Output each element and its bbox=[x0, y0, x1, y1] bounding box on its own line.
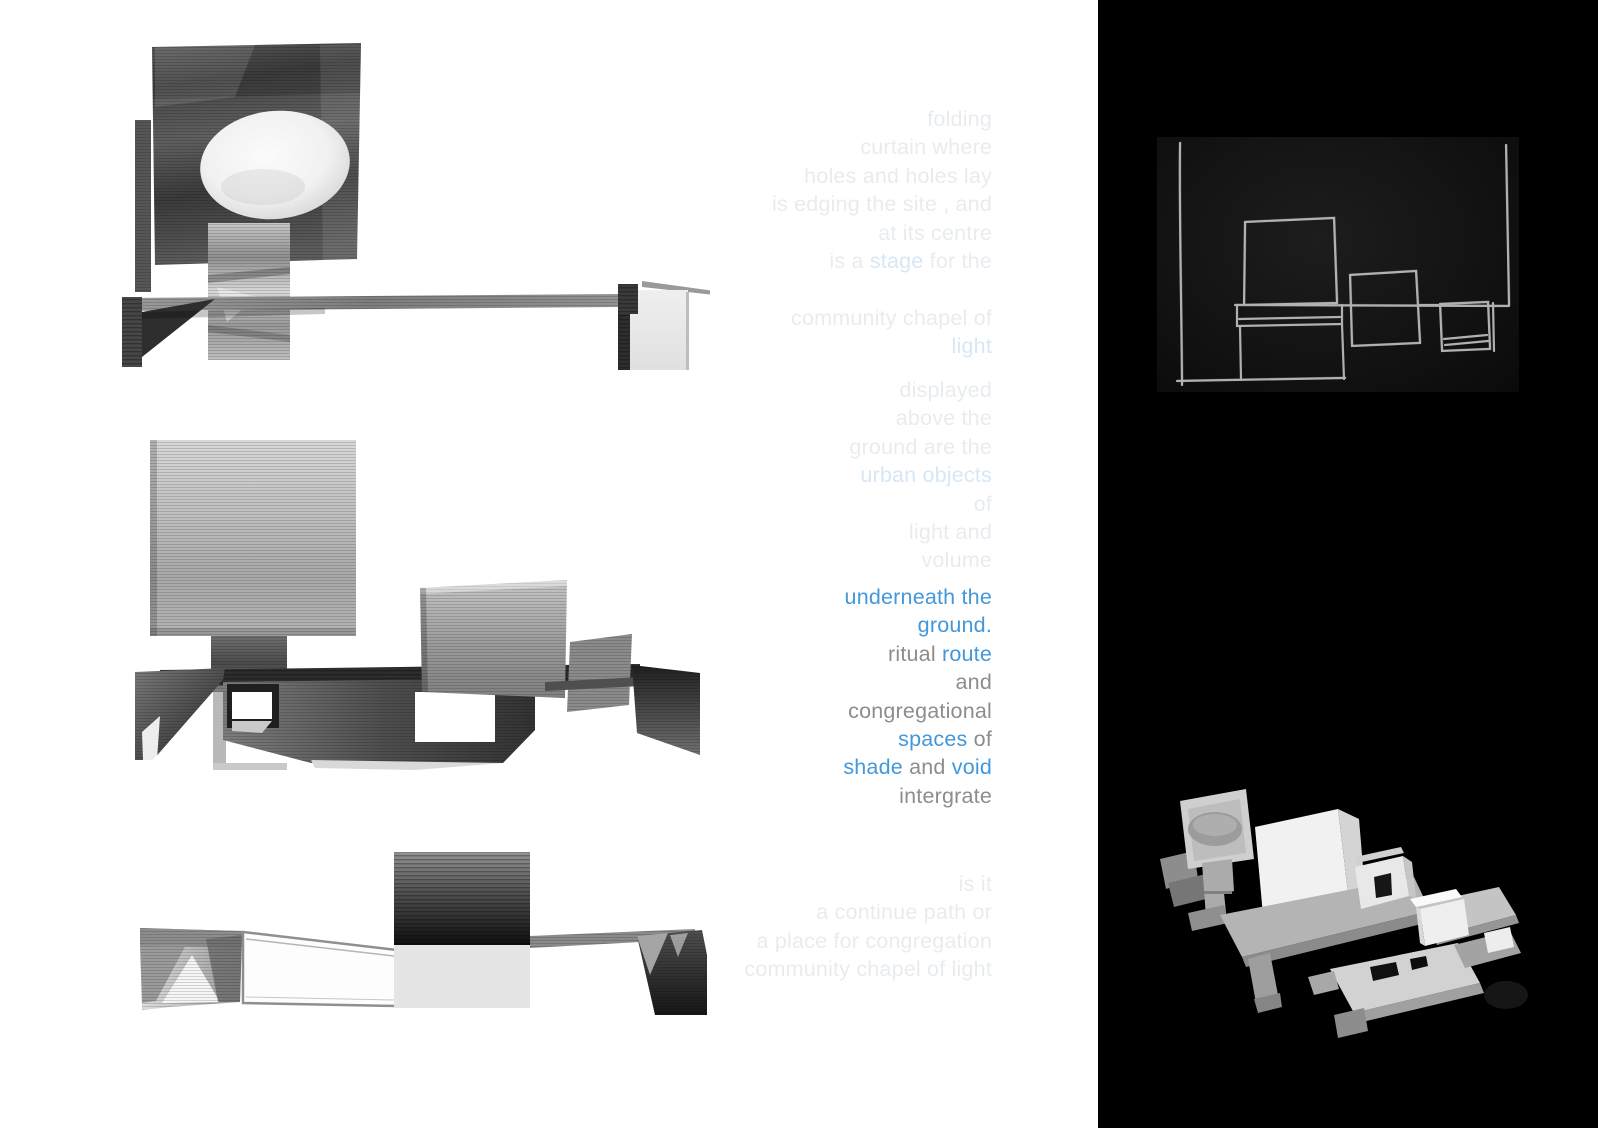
text-segment: shade bbox=[843, 755, 903, 779]
text-line: a place for congregation bbox=[744, 927, 992, 955]
text-segment: at its centre bbox=[878, 221, 992, 245]
text-segment: void bbox=[952, 755, 992, 779]
text-segment: and bbox=[903, 755, 952, 779]
right-black-panel bbox=[1098, 0, 1598, 1128]
text-segment: of bbox=[974, 492, 992, 516]
outline-frame bbox=[243, 932, 397, 1006]
text-line: is edging the site , and bbox=[772, 190, 992, 218]
text-segment: community chapel of light bbox=[744, 957, 992, 981]
text-line: holes and holes lay bbox=[772, 162, 992, 190]
text-segment: volume bbox=[921, 548, 992, 572]
text-line: of bbox=[849, 490, 992, 518]
text-line: is a stage for the bbox=[772, 247, 992, 275]
chalk-lines bbox=[1177, 143, 1509, 385]
text-line: urban objects bbox=[849, 461, 992, 489]
gradient-square-panel bbox=[150, 440, 356, 636]
text-line: light and bbox=[849, 518, 992, 546]
faint-smudge bbox=[1484, 981, 1528, 1009]
text-segment: ground are the bbox=[849, 435, 992, 459]
text-segment: congregational bbox=[848, 699, 992, 723]
text-line: shade and void bbox=[843, 753, 992, 781]
chalk-lines-echo bbox=[1178, 142, 1510, 384]
crumpled-column bbox=[208, 223, 290, 360]
text-block-intro: foldingcurtain whereholes and holes layi… bbox=[772, 105, 992, 361]
text-block-objects: displayedabove theground are theurban ob… bbox=[849, 376, 992, 575]
text-segment: and bbox=[956, 670, 992, 694]
right-stage-box bbox=[618, 281, 710, 370]
mid-square-panel bbox=[420, 580, 567, 698]
model-scan-top bbox=[115, 35, 710, 370]
text-line: folding bbox=[772, 105, 992, 133]
text-segment: community chapel of bbox=[791, 306, 992, 330]
text-segment: intergrate bbox=[899, 784, 992, 808]
dark-gradient-block bbox=[394, 852, 530, 945]
model-scan-bottom bbox=[110, 835, 710, 1025]
text-line: community chapel of bbox=[772, 304, 992, 332]
text-line: ground are the bbox=[849, 433, 992, 461]
text-segment: ritual bbox=[888, 642, 942, 666]
text-segment: of bbox=[967, 727, 992, 751]
text-line: a continue path or bbox=[744, 898, 992, 926]
text-segment: folding bbox=[927, 107, 992, 131]
text-block-main: underneath theground.ritual routeandcong… bbox=[843, 583, 992, 810]
text-line: ground. bbox=[843, 611, 992, 639]
text-line bbox=[772, 275, 992, 303]
model-unit-bottom-plate bbox=[1308, 943, 1484, 1038]
text-segment: is a bbox=[829, 249, 869, 273]
text-line: and bbox=[843, 668, 992, 696]
text-segment: urban objects bbox=[860, 463, 992, 487]
text-block-question: is ita continue path ora place for congr… bbox=[744, 870, 992, 984]
text-line: is it bbox=[744, 870, 992, 898]
text-line: underneath the bbox=[843, 583, 992, 611]
text-segment: for the bbox=[923, 249, 992, 273]
text-segment: holes and holes lay bbox=[804, 164, 992, 188]
text-segment: a place for congregation bbox=[757, 929, 992, 953]
text-line: curtain where bbox=[772, 133, 992, 161]
paper-model-photo bbox=[1158, 763, 1554, 1063]
text-segment: is edging the site , and bbox=[772, 192, 992, 216]
text-segment: spaces bbox=[898, 727, 967, 751]
text-segment: is it bbox=[959, 872, 992, 896]
portfolio-page: foldingcurtain whereholes and holes layi… bbox=[0, 0, 1598, 1128]
left-folded-wedge bbox=[140, 928, 242, 1010]
text-segment: light bbox=[952, 334, 992, 358]
paper-model-photo-figure bbox=[1158, 763, 1554, 1063]
text-line: ritual route bbox=[843, 640, 992, 668]
text-line: above the bbox=[849, 404, 992, 432]
right-dark-wedge bbox=[637, 930, 707, 1015]
text-line: volume bbox=[849, 546, 992, 574]
text-line: light bbox=[772, 332, 992, 360]
chalk-plan-sketch-figure bbox=[1157, 137, 1519, 392]
chalk-plan-sketch bbox=[1157, 137, 1519, 392]
model-unit-dome bbox=[1160, 789, 1254, 931]
model-scan-middle bbox=[115, 430, 710, 770]
text-line: intergrate bbox=[843, 782, 992, 810]
text-line: at its centre bbox=[772, 219, 992, 247]
text-segment: curtain where bbox=[860, 135, 992, 159]
light-block bbox=[394, 945, 530, 1008]
text-segment: displayed bbox=[899, 378, 992, 402]
text-segment: a continue path or bbox=[816, 900, 992, 924]
text-segment: stage bbox=[870, 249, 924, 273]
model-scan-top-figure bbox=[115, 35, 710, 370]
text-line: displayed bbox=[849, 376, 992, 404]
text-segment: light and bbox=[909, 520, 992, 544]
text-line: community chapel of light bbox=[744, 955, 992, 983]
text-line: congregational bbox=[843, 697, 992, 725]
left-folded-flap bbox=[135, 668, 225, 760]
model-scan-middle-figure bbox=[115, 430, 710, 770]
text-segment: underneath the bbox=[845, 585, 992, 609]
text-segment: route bbox=[942, 642, 992, 666]
model-scan-bottom-figure bbox=[110, 835, 710, 1025]
text-segment: above the bbox=[896, 406, 992, 430]
text-line: spaces of bbox=[843, 725, 992, 753]
text-segment: ground. bbox=[918, 613, 992, 637]
